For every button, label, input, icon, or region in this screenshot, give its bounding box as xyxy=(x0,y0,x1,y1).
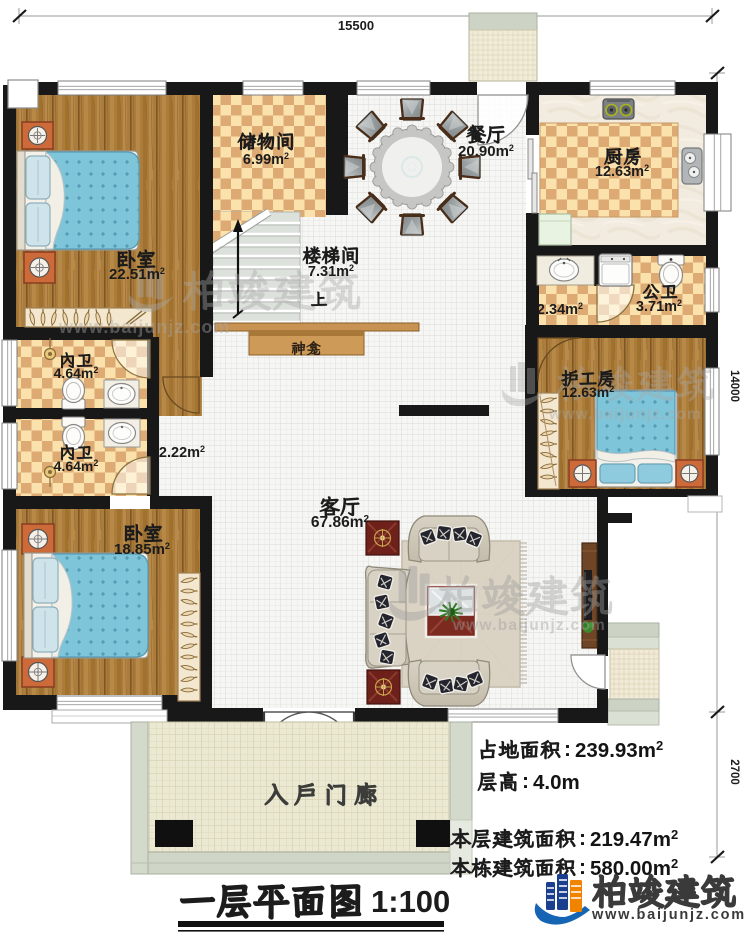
svg-text::: : xyxy=(579,856,586,879)
svg-text:2.22m2: 2.22m2 xyxy=(159,444,205,461)
svg-text:www.baijunjz.com: www.baijunjz.com xyxy=(548,406,702,423)
svg-text:12.63m2: 12.63m2 xyxy=(595,163,649,180)
svg-text:4.64m2: 4.64m2 xyxy=(54,365,99,381)
svg-text:2.34m2: 2.34m2 xyxy=(537,301,583,318)
svg-text:7.31m2: 7.31m2 xyxy=(308,263,354,280)
svg-text:www.baijunjz.com: www.baijunjz.com xyxy=(452,617,606,634)
svg-text:4.0m: 4.0m xyxy=(533,771,580,794)
svg-text:15500: 15500 xyxy=(338,18,374,33)
svg-text:3.71m2: 3.71m2 xyxy=(636,298,682,315)
svg-text:239.93m2: 239.93m2 xyxy=(575,738,663,762)
svg-text:219.47m2: 219.47m2 xyxy=(590,827,678,851)
svg-text:20.90m2: 20.90m2 xyxy=(458,143,514,160)
svg-text:2700: 2700 xyxy=(728,759,740,785)
svg-text:18.85m2: 18.85m2 xyxy=(114,541,170,558)
svg-text:www.baijunjz.com: www.baijunjz.com xyxy=(591,907,746,923)
svg-text:4.64m2: 4.64m2 xyxy=(54,458,99,474)
svg-text:12.63m2: 12.63m2 xyxy=(562,384,615,400)
svg-text:22.51m2: 22.51m2 xyxy=(109,266,165,283)
svg-text::: : xyxy=(564,738,571,761)
svg-text:67.86m2: 67.86m2 xyxy=(311,514,370,531)
svg-text:www.baijunjz.com: www.baijunjz.com xyxy=(58,317,230,337)
svg-text::: : xyxy=(522,770,529,793)
svg-text::: : xyxy=(579,827,586,850)
svg-text:6.99m2: 6.99m2 xyxy=(243,151,289,168)
svg-text:14000: 14000 xyxy=(728,370,740,402)
svg-text:1:100: 1:100 xyxy=(371,884,450,919)
